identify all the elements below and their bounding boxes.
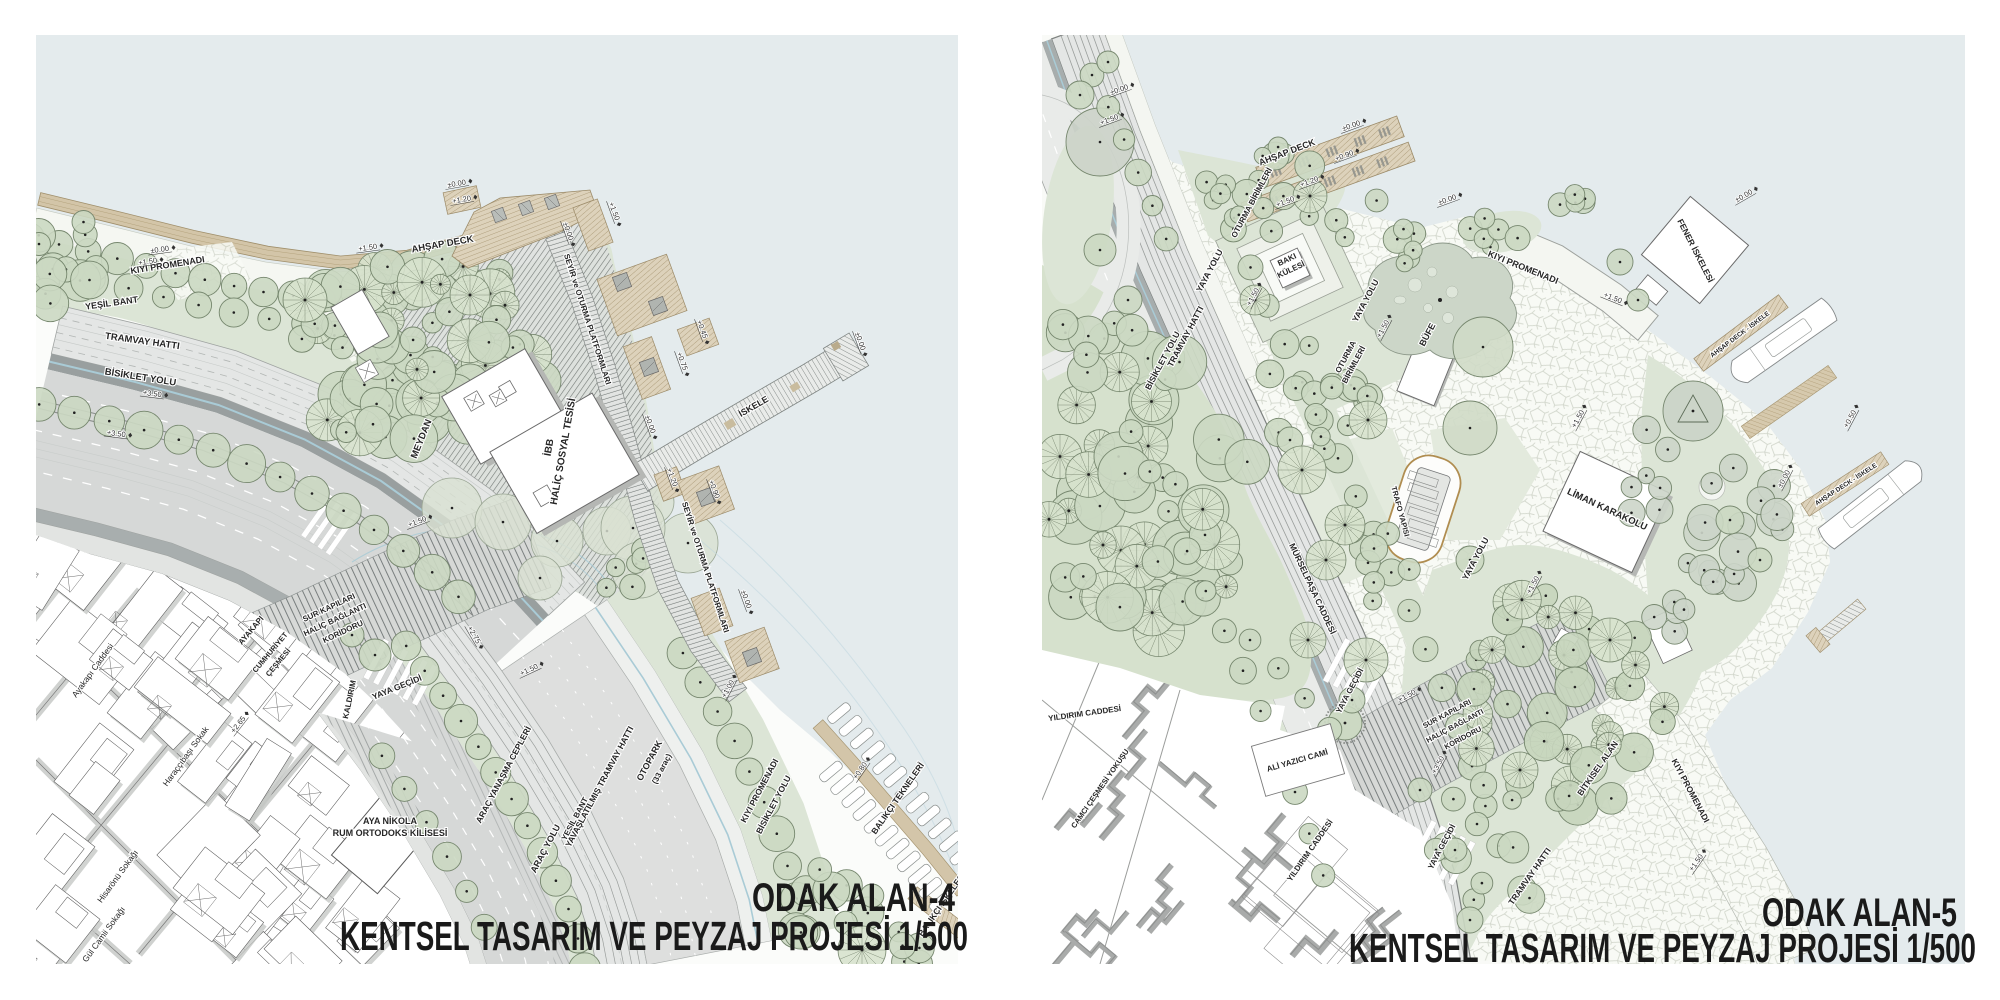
svg-text:KENTSEL TASARIM VE PEYZAJ PROJ: KENTSEL TASARIM VE PEYZAJ PROJESİ 1/500 [1349,925,1976,971]
svg-text:AYA NİKOLA: AYA NİKOLA [363,816,418,826]
svg-text:KENTSEL TASARIM VE PEYZAJ PROJ: KENTSEL TASARIM VE PEYZAJ PROJESİ 1/500 [340,913,968,959]
svg-text:RUM ORTODOKS KİLİSESİ: RUM ORTODOKS KİLİSESİ [333,828,448,838]
